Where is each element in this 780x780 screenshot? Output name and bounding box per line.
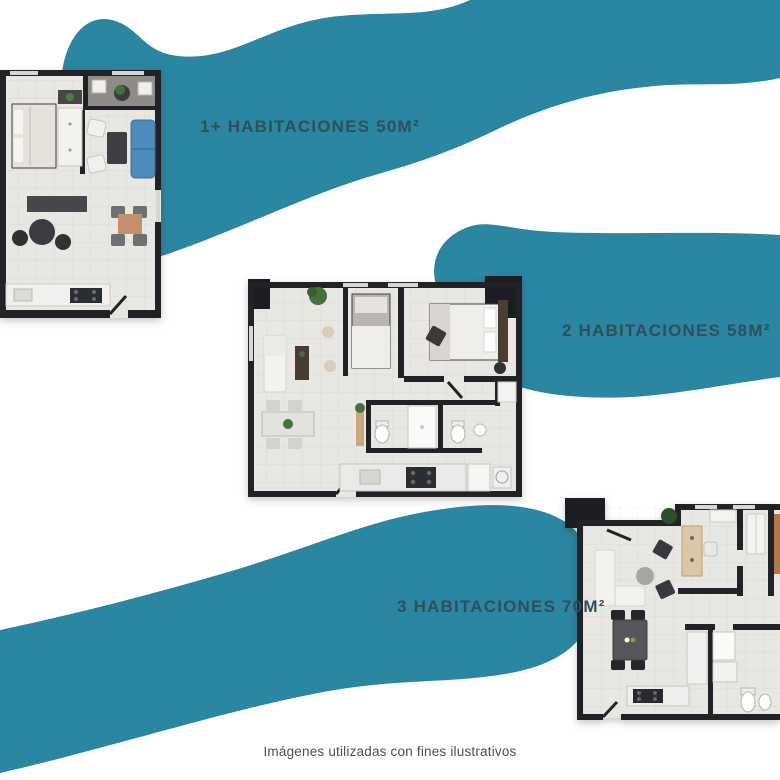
ribbon-label-3-habitaciones: 3 HABITACIONES 70M² <box>397 597 606 617</box>
ribbon-bottom-wave <box>0 505 596 773</box>
fp2-tv-console <box>295 346 309 380</box>
ribbon-label-1-habitaciones: 1+ HABITACIONES 50M² <box>200 117 420 137</box>
ribbon-top-wave <box>61 0 780 258</box>
disclaimer-text: Imágenes utilizadas con fines ilustrativ… <box>0 744 780 759</box>
floorplan-1-bedroom-50m2 <box>0 70 161 318</box>
fp2-pouf <box>324 360 336 372</box>
fp3-cabinet <box>774 514 780 574</box>
ribbon-label-2-habitaciones: 2 HABITACIONES 58M² <box>562 321 771 341</box>
fp2-pouf <box>322 326 334 338</box>
floorplan-2-bedrooms-58m2 <box>248 276 522 497</box>
fp1-coffee-table <box>107 132 127 164</box>
fp2-sofa <box>264 336 286 392</box>
fp3-wardrobe <box>747 514 765 554</box>
fp2-kitchen <box>340 464 511 491</box>
fp2-closet <box>498 382 516 402</box>
fp1-sofa <box>131 120 155 178</box>
fp3-rug <box>636 567 654 585</box>
fp1-bench <box>27 196 87 212</box>
fp1-bed <box>12 104 56 168</box>
fp1-kitchen <box>6 284 110 306</box>
fp1-wardrobe <box>58 108 82 166</box>
fp2-side-table <box>494 362 506 374</box>
fp1-nightstand <box>58 90 82 104</box>
fp3-counter <box>710 510 736 522</box>
flyer-canvas: 1+ HABITACIONES 50M² 2 HABITACIONES 58M²… <box>0 0 780 780</box>
fp2-bed-1 <box>352 294 390 368</box>
fp2-shelf-plant <box>355 403 365 446</box>
